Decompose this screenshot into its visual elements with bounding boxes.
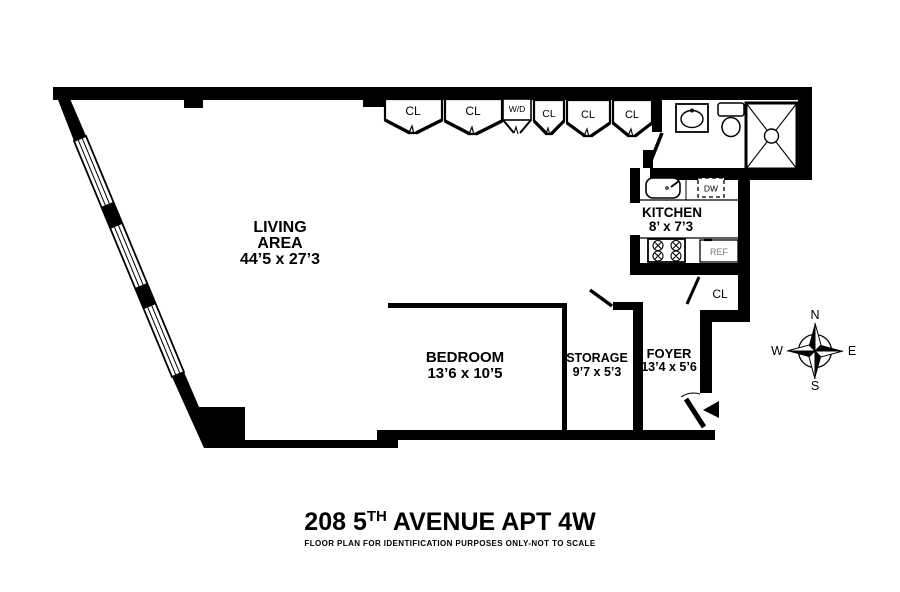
closet-3-label: CL: [542, 108, 556, 120]
shower: [746, 103, 797, 169]
hall-closet: CL: [687, 277, 728, 304]
dishwasher: DW: [698, 178, 724, 197]
dishwasher-label: DW: [704, 184, 718, 194]
storage-door: [590, 290, 612, 306]
hall-closet-door: [687, 277, 699, 304]
closet-3: CL: [534, 100, 564, 135]
page-title: 208 5TH AVENUE APT 4W: [304, 508, 596, 536]
floor-plan-page: CL CL W/D CL CL: [0, 0, 900, 592]
window-glass: [74, 136, 184, 377]
entry-arrow-icon: [703, 401, 719, 418]
storage-label: STORAGE: [566, 351, 628, 365]
closet-1-label: CL: [405, 104, 421, 118]
washer-dryer-label: W/D: [509, 104, 526, 114]
closet-row: CL CL W/D CL CL: [385, 99, 652, 137]
closet-4: CL: [567, 100, 610, 137]
title-superscript: TH: [367, 508, 387, 525]
room-labels: LIVING AREA 44’5 x 27’3 BEDROOM 13’6 x 1…: [240, 205, 702, 382]
kitchen-sink: [646, 178, 680, 198]
compass-south-label: S: [811, 379, 819, 393]
disclaimer: FLOOR PLAN FOR IDENTIFICATION PURPOSES O…: [304, 539, 595, 548]
entry-door-leaf: [686, 399, 704, 427]
closet-5-label: CL: [625, 109, 639, 121]
kitchen-label: KITCHEN: [642, 205, 702, 220]
closet-4-label: CL: [581, 109, 595, 121]
window-band: [74, 136, 184, 377]
bathroom: [650, 103, 797, 169]
footer: 208 5TH AVENUE APT 4W FLOOR PLAN FOR IDE…: [304, 508, 596, 548]
compass-icon: N S E W: [771, 308, 856, 393]
hall-closet-label: CL: [712, 287, 728, 301]
bedroom-dims: 13’6 x 10’5: [427, 365, 502, 382]
compass-east-label: E: [848, 344, 856, 358]
closet-2: CL: [445, 99, 502, 135]
floor-plan-svg: CL CL W/D CL CL: [0, 0, 900, 592]
bathroom-door: [650, 133, 662, 163]
living-area-label-1: LIVING: [253, 219, 306, 236]
foyer-label: FOYER: [647, 346, 692, 361]
closet-5: CL: [613, 100, 652, 137]
closet-2-label: CL: [465, 104, 481, 118]
stove: [648, 239, 685, 262]
toilet: [718, 103, 744, 137]
entry-door: [681, 393, 719, 427]
title-prefix: 208 5: [304, 508, 367, 536]
refrigerator-label: REF: [710, 247, 729, 257]
compass-west-label: W: [771, 344, 783, 358]
window-line: [78, 139, 176, 375]
closet-1: CL: [385, 99, 442, 134]
kitchen-dims: 8’ x 7’3: [649, 219, 694, 234]
living-area-label-2: AREA: [257, 235, 303, 252]
storage-dims: 9’7 x 5’3: [573, 365, 622, 379]
foyer-dims: 13’4 x 5’6: [641, 360, 697, 374]
refrigerator: REF: [700, 240, 738, 262]
bedroom-label: BEDROOM: [426, 349, 504, 366]
living-area-dims: 44’5 x 27’3: [240, 251, 320, 268]
window-line: [82, 138, 180, 374]
title-suffix: AVENUE APT 4W: [387, 508, 596, 536]
washer-dryer: W/D: [503, 99, 531, 134]
compass-north-label: N: [810, 308, 819, 322]
